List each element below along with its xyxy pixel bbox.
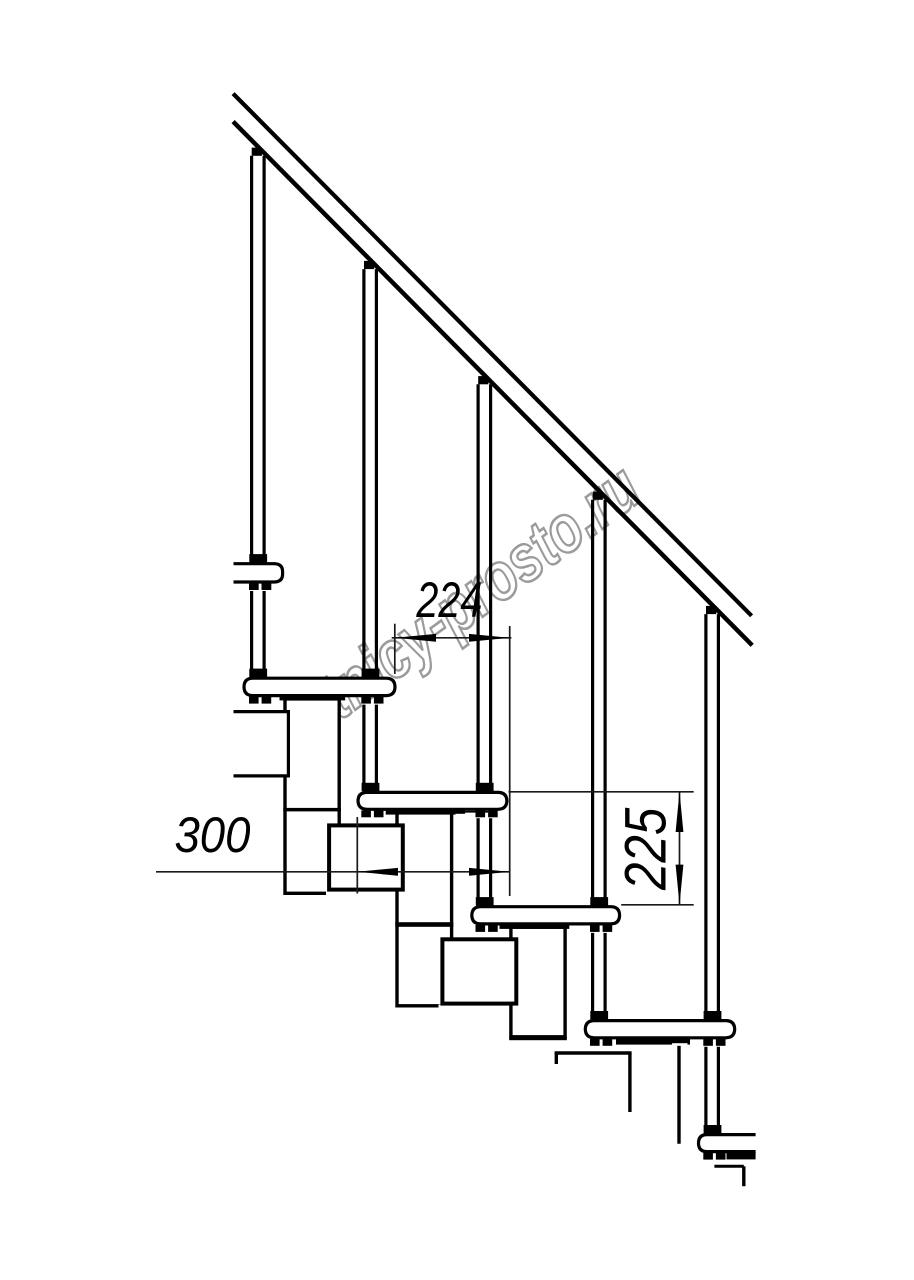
svg-text:225: 225 (614, 807, 679, 891)
svg-text:300: 300 (175, 808, 251, 863)
svg-text:224: 224 (416, 572, 483, 629)
